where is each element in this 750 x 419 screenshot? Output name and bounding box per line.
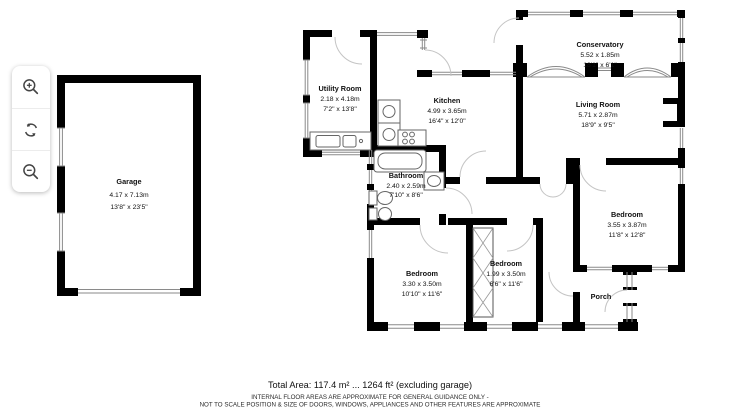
bedroom-left-size-imperial: 10'10" x 11'6" <box>402 291 443 298</box>
garage-size-metric: 4.17 x 7.13m <box>109 192 149 199</box>
living-room-label: Living Room <box>576 100 621 109</box>
bedroom-left-size-metric: 3.30 x 3.50m <box>402 281 442 288</box>
bedroom-middle-label: Bedroom <box>490 259 523 268</box>
bidet <box>379 208 392 221</box>
disclaimer-line1: INTERNAL FLOOR AREAS ARE APPROXIMATE FOR… <box>251 394 488 401</box>
utility-size-imperial: 7'2" x 13'8" <box>323 106 357 113</box>
bathroom-size-imperial: 7'10" x 8'6" <box>389 192 423 199</box>
footer: Total Area: 117.4 m² ... 1264 ft² (exclu… <box>200 380 541 409</box>
bathroom-size-metric: 2.40 x 2.59m <box>386 183 426 190</box>
rotate-button[interactable] <box>12 108 50 150</box>
viewer-controls <box>12 66 50 192</box>
bedroom-left-label: Bedroom <box>406 269 439 278</box>
disclaimer-line2: NOT TO SCALE POSITION & SIZE OF DOORS, W… <box>200 402 541 409</box>
bedroom-middle-size-metric: 1.99 x 3.50m <box>486 271 526 278</box>
bedroom-middle-size-imperial: 6'6" x 11'6" <box>490 281 524 288</box>
magnifier-plus-icon <box>21 77 41 97</box>
living-room-size-metric: 5.71 x 2.87m <box>578 112 618 119</box>
kitchen-label: Kitchen <box>434 96 461 105</box>
fireplace-recess <box>663 104 677 121</box>
kitchen-size-imperial: 16'4" x 12'0" <box>428 118 466 125</box>
bathroom-label: Bathroom <box>389 171 424 180</box>
floor-plan-page: Garage 4.17 x 7.13m 13'8" x 23'5" Utilit… <box>0 0 750 419</box>
conservatory-label: Conservatory <box>576 40 624 49</box>
zoom-out-button[interactable] <box>12 150 50 192</box>
conservatory-size-metric: 5.52 x 1.85m <box>580 52 620 59</box>
garage-label: Garage <box>116 177 141 186</box>
zoom-in-button[interactable] <box>12 66 50 108</box>
rotate-arrows-icon <box>21 120 41 140</box>
bedroom-right-label: Bedroom <box>611 210 644 219</box>
utility-label: Utility Room <box>319 84 362 93</box>
magnifier-minus-icon <box>21 162 41 182</box>
toilet-cistern <box>369 191 377 205</box>
garage-size-imperial: 13'8" x 23'5" <box>110 204 148 211</box>
bedroom-right-size-metric: 3.55 x 3.87m <box>607 222 647 229</box>
total-area-text: Total Area: 117.4 m² ... 1264 ft² (exclu… <box>268 380 472 390</box>
bedroom-right-size-imperial: 11'8" x 12'8" <box>609 232 646 239</box>
floor-plan: Garage 4.17 x 7.13m 13'8" x 23'5" Utilit… <box>0 0 750 419</box>
living-room-size-imperial: 18'9" x 9'5" <box>581 122 615 129</box>
porch-label: Porch <box>591 292 612 301</box>
conservatory-size-imperial: 18'1" x 6'1" <box>583 62 617 69</box>
kitchen-size-metric: 4.99 x 3.65m <box>427 108 467 115</box>
utility-size-metric: 2.18 x 4.18m <box>320 96 360 103</box>
